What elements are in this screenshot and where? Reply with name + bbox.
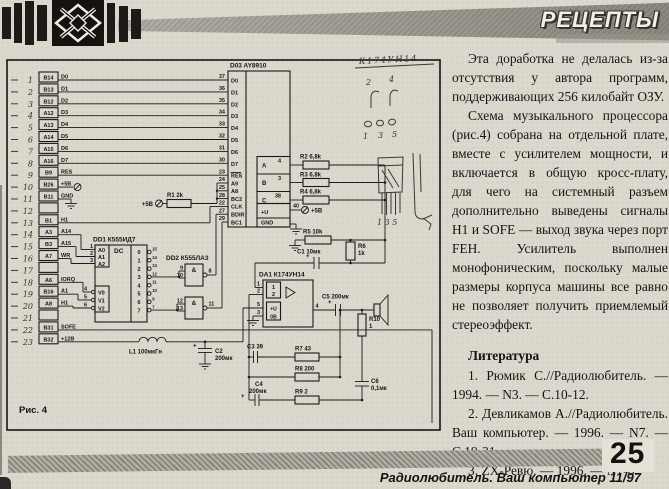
schematic-figure: 1 B14 D0 2 B13 D1 3 B12 D2 4 A12 xyxy=(3,52,443,437)
hand-row-number: 14 xyxy=(23,231,33,240)
svg-text:V0: V0 xyxy=(98,291,105,297)
connector-pin-name: A12 xyxy=(43,111,53,117)
svg-text:3: 3 xyxy=(257,310,260,316)
svg-text:7: 7 xyxy=(152,305,155,310)
scan-edge-artifact xyxy=(0,185,2,475)
svg-text:5: 5 xyxy=(392,130,397,139)
hand-row-number: 21 xyxy=(22,314,33,323)
data-pin: 30 D7 xyxy=(58,157,238,168)
connector-pin-name: A16 xyxy=(43,159,53,165)
decoder-func-label: DC xyxy=(114,248,124,255)
vcc-pin-label: +U xyxy=(261,210,268,216)
connector-row: 23 B32 +12В xyxy=(11,334,74,347)
connector-row: 1 B14 D0 xyxy=(11,72,68,85)
abc-outputs: A 4 B 3 C 38 xyxy=(262,159,282,205)
hand-row-number: 5 xyxy=(28,124,33,133)
svg-text:22: 22 xyxy=(219,201,225,207)
plus5v-label: +5В xyxy=(311,209,323,215)
svg-text:A: A xyxy=(262,164,267,170)
connector-row: 18 A6 IORQ xyxy=(11,274,76,287)
svg-text:13: 13 xyxy=(152,263,157,268)
svg-text:37: 37 xyxy=(219,74,225,80)
supply-filter: L1 100мкГн + C2 200мк xyxy=(129,341,232,370)
c4-label: C4 xyxy=(255,382,263,388)
connector-row: 6 A14 D5 xyxy=(11,132,68,145)
svg-text:9: 9 xyxy=(152,296,155,301)
hand-row-number: 12 xyxy=(23,207,33,216)
svg-text:5: 5 xyxy=(137,292,140,298)
svg-text:27: 27 xyxy=(219,208,225,214)
svg-text:A1: A1 xyxy=(98,255,105,261)
connector-row: 22 B31 SOFE xyxy=(11,322,76,335)
connector-pin-name: B32 xyxy=(43,337,53,343)
svg-text:A9: A9 xyxy=(231,181,238,187)
svg-text:6: 6 xyxy=(84,303,87,309)
connector-row: 7 A15 D6 xyxy=(11,143,68,156)
hand-row-number: 20 xyxy=(22,302,33,311)
svg-text:4: 4 xyxy=(388,75,394,84)
connector-pin-name: B13 xyxy=(43,87,53,93)
page-number: 25 xyxy=(610,437,645,471)
svg-text:10: 10 xyxy=(152,288,157,293)
r10-value: 1 xyxy=(369,324,373,330)
hand-row-number: 18 xyxy=(23,278,33,287)
scan-corner-artifact xyxy=(0,477,11,489)
connector-row: 2 B13 D1 xyxy=(11,84,68,97)
article-paragraph: Эта доработка не делалась из-за отсутств… xyxy=(452,49,668,106)
connector-pin-name: A7 xyxy=(45,254,52,260)
svg-text:3: 3 xyxy=(378,131,383,140)
output-stage: C5 200мк + R10 1 C6 0,1мк xyxy=(313,295,388,401)
connector-row: 9 B9 RES xyxy=(11,167,73,180)
connector-row: 14 A3 A14 xyxy=(11,227,72,240)
hand-row-number: 16 xyxy=(23,255,33,264)
l1-label: L1 100мкГн xyxy=(129,350,162,356)
svg-text:3: 3 xyxy=(137,275,140,281)
svg-text:5: 5 xyxy=(257,302,260,308)
svg-text:D6: D6 xyxy=(231,150,238,156)
svg-text:V1: V1 xyxy=(98,299,105,305)
svg-text:B: B xyxy=(262,181,267,187)
hand-row-number: 13 xyxy=(23,219,33,228)
svg-text:1: 1 xyxy=(90,244,93,250)
svg-text:2: 2 xyxy=(257,289,260,295)
svg-text:+: + xyxy=(306,254,310,260)
connector-row: 20 A8 H1 xyxy=(11,298,68,311)
ctrl-pins: 23 RES 24 A9 25 A8 28 BC2 22 CLK 27 BDIR xyxy=(219,169,245,226)
svg-text:2: 2 xyxy=(365,78,371,87)
chip-ref-label: DD2 К555ЛА3 xyxy=(166,255,209,262)
svg-text:31: 31 xyxy=(219,145,225,151)
svg-text:&: & xyxy=(192,300,197,307)
connector-row: 4 A12 D3 xyxy=(11,108,68,121)
hand-row-number: 7 xyxy=(28,147,34,156)
r9-label: R9 2 xyxy=(295,390,308,396)
hand-row-number: 22 xyxy=(22,326,33,335)
connector-pin-box xyxy=(39,262,58,272)
svg-text:29: 29 xyxy=(219,216,225,222)
connector-pin-name: A6 xyxy=(45,278,52,284)
hand-row-number: 19 xyxy=(23,290,33,299)
section-title: РЕЦЕПТЫ xyxy=(541,7,659,33)
svg-text:7: 7 xyxy=(137,308,140,314)
chip-dd1-k555id7: DD1 К555ИД7 DC 1 A0 2 A1 3 A2 xyxy=(84,237,158,323)
hand-row-number: 2 xyxy=(27,88,33,97)
svg-text:11: 11 xyxy=(209,302,215,308)
hand-row-number: 3 xyxy=(28,100,33,109)
svg-text:2: 2 xyxy=(272,292,275,298)
r5-label: R5 10k xyxy=(303,230,323,236)
svg-text:24: 24 xyxy=(219,177,226,183)
masthead-logo-icon xyxy=(0,0,160,48)
svg-text:1: 1 xyxy=(363,132,368,141)
svg-text:D2: D2 xyxy=(231,102,238,108)
chip-ref-label: D03 AY8910 xyxy=(230,63,267,70)
dd1-a-inputs: 1 A0 2 A1 3 A2 xyxy=(90,244,105,268)
hand-row-number: 1 xyxy=(28,76,33,85)
c6-value: 0,1мк xyxy=(371,386,387,392)
svg-text:+U: +U xyxy=(270,307,277,313)
svg-text:D7: D7 xyxy=(231,162,238,168)
gnd-pin-label: GND xyxy=(261,221,273,227)
c6-label: C6 xyxy=(371,379,379,385)
connector-pin-name: B16 xyxy=(43,290,53,296)
connector-pin-name: B12 xyxy=(43,99,53,105)
svg-text:1 3 5: 1 3 5 xyxy=(377,218,397,227)
svg-text:4: 4 xyxy=(137,283,141,289)
c2-label: C2 xyxy=(215,349,223,355)
connector-pin-box xyxy=(39,310,58,320)
svg-text:CLK: CLK xyxy=(231,205,242,211)
svg-text:11: 11 xyxy=(152,280,157,285)
c3-label: C3 39 xyxy=(247,345,264,351)
feedback-network: C3 39 R7 43 R8 200 R9 2 C4 200мк + xyxy=(241,309,363,406)
chip-ref-label: DA1 К174УН14 xyxy=(259,272,305,279)
connector-row: 21 xyxy=(11,310,58,323)
connector-pin-name: B3 xyxy=(45,242,52,248)
svg-text:A0: A0 xyxy=(98,248,105,254)
data-pin: 32 D5 xyxy=(58,134,238,145)
svg-text:RES: RES xyxy=(231,174,243,180)
r7-label: R7 43 xyxy=(295,347,312,353)
data-pin: 31 D6 xyxy=(58,145,238,156)
svg-text:3: 3 xyxy=(278,176,281,182)
svg-text:8: 8 xyxy=(209,269,212,275)
svg-text:V2: V2 xyxy=(98,307,105,313)
connector-pin-name: B26 xyxy=(43,183,53,189)
connector-pin-box xyxy=(39,203,58,213)
r8-label: R8 200 xyxy=(295,367,315,373)
connector-pin-name: A15 xyxy=(43,147,53,153)
svg-text:6: 6 xyxy=(137,300,140,306)
amp-triangle-icon xyxy=(286,287,295,298)
edge-connector: 1 B14 D0 2 B13 D1 3 B12 D2 4 A12 xyxy=(11,72,76,347)
svg-text:14: 14 xyxy=(152,255,157,260)
figure-caption: Рис. 4 xyxy=(19,405,48,416)
handwritten-annotations: К174УН14 2 4 1 3 5 1 3 5 xyxy=(355,54,434,230)
chip-ref-label: DD1 К555ИД7 xyxy=(93,237,136,244)
hand-row-number: 6 xyxy=(28,136,33,145)
r10-label: R10 xyxy=(369,317,381,323)
svg-text:34: 34 xyxy=(219,110,226,116)
connector-pin-name: B11 xyxy=(44,195,54,201)
svg-text:1: 1 xyxy=(272,285,275,291)
connector-pin-name: A14 xyxy=(43,135,54,141)
svg-text:36: 36 xyxy=(219,86,225,92)
svg-text:0В: 0В xyxy=(270,315,277,321)
hand-row-number: 9 xyxy=(28,171,33,180)
svg-text:23: 23 xyxy=(219,169,225,175)
svg-text:D0: D0 xyxy=(231,79,238,85)
connector-row: 8 A16 D7 xyxy=(11,155,68,168)
nand-gate-1: & 9 10 8 xyxy=(177,264,212,286)
svg-text:30: 30 xyxy=(219,157,225,163)
r1-label: R1 2k xyxy=(167,193,184,199)
hand-row-number: 23 xyxy=(22,338,33,347)
c2-value: 200мк xyxy=(215,356,232,362)
data-pin: 37 D0 xyxy=(58,74,238,85)
svg-text:+: + xyxy=(328,300,332,306)
dd1-v-inputs: 4 V0 5 V1 6 V2 xyxy=(84,287,105,313)
hand-row-number: 11 xyxy=(23,195,33,204)
r6-label: R6 xyxy=(358,244,366,250)
svg-text:15: 15 xyxy=(152,247,157,252)
connector-pin-name: A3 xyxy=(45,230,52,236)
svg-text:BC2: BC2 xyxy=(231,197,242,203)
svg-text:2: 2 xyxy=(137,267,140,273)
connector-pin-name: B31 xyxy=(43,325,53,331)
svg-text:4: 4 xyxy=(316,304,320,310)
svg-text:0: 0 xyxy=(137,250,140,256)
hand-row-number: 17 xyxy=(23,266,34,275)
hand-row-number: 8 xyxy=(28,159,33,168)
svg-text:3: 3 xyxy=(90,258,93,264)
svg-text:1: 1 xyxy=(137,259,140,265)
connector-row: 16 A7 WR xyxy=(11,251,70,264)
banner-smudge xyxy=(556,34,669,43)
svg-text:38: 38 xyxy=(275,194,281,200)
data-bus-wires: 37 D0 36 D1 35 D2 34 D3 33 D4 32 xyxy=(58,74,239,168)
data-pin: 34 D3 xyxy=(58,110,238,121)
connector-pin-name: B1 xyxy=(45,218,52,224)
connector-row: 12 xyxy=(11,203,58,216)
connector-row: 5 A13 D4 xyxy=(11,120,69,133)
plus5v-label: +5В xyxy=(142,202,154,208)
magazine-page: РЕЦЕПТЫ 1 B14 D0 2 B13 D1 3 B12 xyxy=(0,0,669,489)
r2-label: R2 6,8k xyxy=(300,155,322,161)
r1-network: +5В R1 2k xyxy=(142,183,228,208)
connector-pin-name: A8 xyxy=(45,302,52,308)
connector-row: 11 B11 GND xyxy=(11,191,73,204)
svg-text:D4: D4 xyxy=(231,126,239,132)
vcc-pin-number: 40 xyxy=(293,204,299,210)
connector-row: 3 B12 D2 xyxy=(11,96,68,109)
svg-text:A8: A8 xyxy=(231,189,238,195)
svg-text:A2: A2 xyxy=(98,262,105,268)
r4-label: R4 6,8k xyxy=(300,190,322,196)
literature-item: 1. Рюмик С.//Радиолюбитель. — 1994. — N3… xyxy=(452,366,668,404)
connector-row: 10 B26 +5В xyxy=(11,179,71,192)
c4-value: 200мк xyxy=(249,389,266,395)
svg-text:BDIR: BDIR xyxy=(231,213,244,219)
chip-dd2-k555la3: DD2 К555ЛА3 & 9 10 8 & 12 13 11 xyxy=(151,214,228,319)
svg-text:28: 28 xyxy=(219,193,225,199)
svg-text:2: 2 xyxy=(90,251,93,257)
speaker-icon xyxy=(374,304,380,316)
svg-text:5: 5 xyxy=(84,295,87,301)
r6-value: 1k xyxy=(358,251,365,257)
connector-row: 15 B3 A15 xyxy=(11,239,71,252)
connector-row: 17 xyxy=(11,262,58,275)
svg-text:32: 32 xyxy=(219,134,225,140)
journal-title: Радиолюбитель. Ваш компьютер 11/97 xyxy=(380,470,641,485)
data-pin: 36 D1 xyxy=(58,86,238,97)
svg-text:4: 4 xyxy=(278,159,282,165)
connector-pin-name: B14 xyxy=(43,76,54,82)
svg-text:+: + xyxy=(193,344,197,350)
svg-text:D3: D3 xyxy=(231,114,238,120)
hand-row-number: 10 xyxy=(23,183,33,192)
svg-text:12: 12 xyxy=(152,271,157,276)
hand-row-number: 15 xyxy=(23,243,33,252)
svg-text:1: 1 xyxy=(257,282,260,288)
svg-text:+: + xyxy=(241,394,245,400)
c5-label: C5 200мк xyxy=(322,295,349,301)
svg-text:BC1: BC1 xyxy=(231,220,242,226)
article-paragraph: Схема музыкального процессора (рис.4) со… xyxy=(452,106,668,334)
data-pin: 33 D4 xyxy=(58,122,239,133)
svg-text:35: 35 xyxy=(219,98,225,104)
article-column: Эта доработка не делалась из-за отсутств… xyxy=(452,49,668,480)
data-pin: 35 D2 xyxy=(58,98,238,109)
connector-row: 13 B1 H1 xyxy=(11,215,68,228)
literature-heading: Литература xyxy=(452,346,668,365)
svg-text:D5: D5 xyxy=(231,138,238,144)
connector-pin-name: B9 xyxy=(45,171,52,177)
svg-text:33: 33 xyxy=(219,122,225,128)
svg-text:25: 25 xyxy=(219,185,225,191)
svg-text:D1: D1 xyxy=(231,90,238,96)
r3-label: R3 6,8k xyxy=(300,173,322,179)
connector-pin-name: A13 xyxy=(43,123,53,129)
hand-row-number: 4 xyxy=(27,112,33,121)
connector-row: 19 B16 A1 xyxy=(11,286,68,299)
svg-text:&: & xyxy=(192,267,197,274)
chip-d03-ay8910: D03 AY8910 23 RES 24 A9 25 A8 28 BC2 xyxy=(219,63,323,235)
